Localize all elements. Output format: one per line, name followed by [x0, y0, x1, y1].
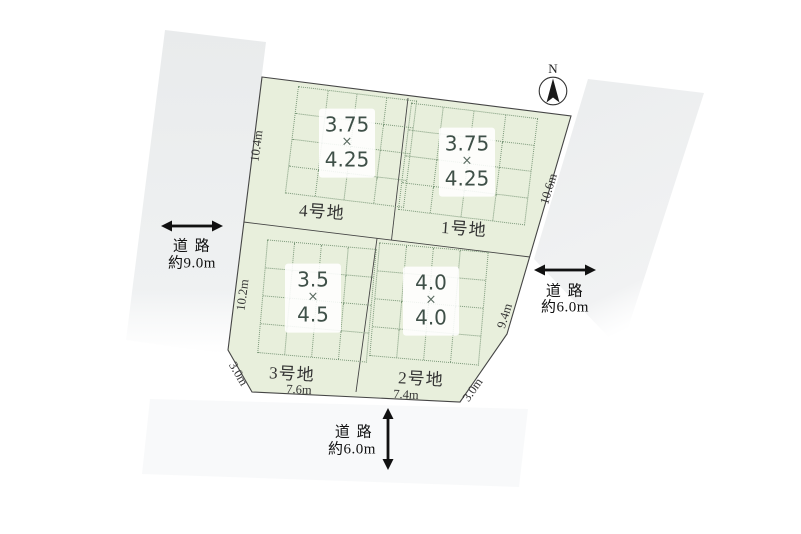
west-road-width: 約9.0m	[168, 252, 216, 273]
dim-bottom-left: 7.6m	[286, 382, 312, 398]
site-plan: 3.75 × 4.25 3.75 × 4.25 3.5 × 4.5 4.0 × …	[0, 0, 801, 534]
plot2-size: 4.0 × 4.0	[403, 267, 459, 336]
north-label: N	[536, 62, 570, 76]
plot3-depth: 4.5	[297, 304, 329, 326]
east-road-width-arrow	[534, 263, 596, 277]
plot4-width: 3.75	[325, 114, 370, 136]
plot4-size: 3.75 × 4.25	[319, 109, 375, 178]
dim-bottom-right: 7.4m	[393, 387, 419, 403]
plot2-width: 4.0	[415, 272, 447, 294]
south-road-width: 約6.0m	[328, 438, 376, 459]
plot1-label: 1号地	[440, 213, 487, 241]
plot2-depth: 4.0	[415, 307, 447, 329]
plot1-width: 3.75	[445, 133, 490, 155]
plot3-width: 3.5	[297, 269, 329, 291]
plot4-label: 4号地	[298, 196, 345, 224]
west-road-width-arrow	[161, 219, 223, 233]
north-compass: N	[536, 62, 570, 111]
plot4-depth: 4.25	[325, 149, 370, 171]
plot3-size: 3.5 × 4.5	[285, 264, 341, 333]
plot1-depth: 4.25	[445, 168, 490, 190]
south-road-width-arrow	[381, 408, 395, 470]
east-road-width: 約6.0m	[541, 296, 589, 317]
compass-icon	[538, 76, 568, 106]
plot1-size: 3.75 × 4.25	[439, 128, 495, 197]
